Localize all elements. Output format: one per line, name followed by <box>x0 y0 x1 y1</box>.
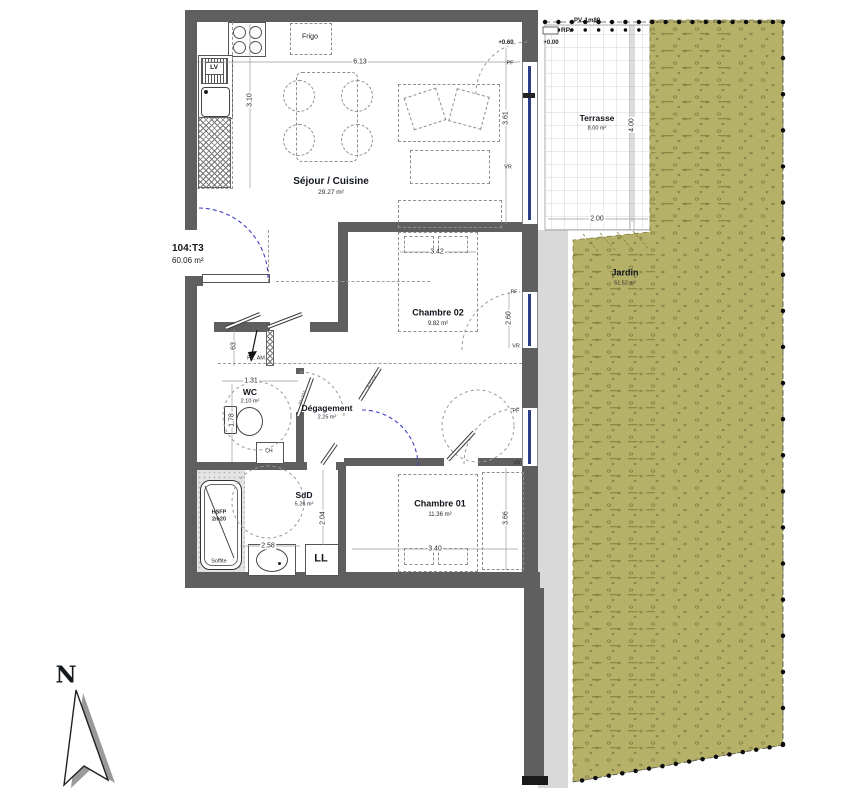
pf-chambre01: PF <box>512 409 519 415</box>
floor-plan: LV Frigo LL CH <box>0 0 856 800</box>
room-area-jardin: 51.52 m² <box>614 281 636 287</box>
room-area-chambre01: 11.36 m² <box>428 512 451 518</box>
dim-sdd-width: 2.58 <box>260 543 276 550</box>
dim-chambre01-depth: 3.66 <box>503 510 510 526</box>
dim-wc-depth: 1.78 <box>229 412 236 428</box>
room-label-jardin: Jardin <box>611 269 638 278</box>
dim-chambre02-width: 3.42 <box>429 249 445 256</box>
room-label-chambre02: Chambre 02 <box>412 309 464 318</box>
dim-terrace-length: 4.00 <box>629 117 636 133</box>
north-arrow <box>58 688 128 793</box>
room-area-terrasse: 8.00 m² <box>588 126 607 132</box>
dim-terrace-width: 2.00 <box>589 216 605 223</box>
pf-chambre02: PF <box>510 290 517 296</box>
unit-area: 60.06 m² <box>172 257 204 265</box>
hsfp-height: 2m20 <box>212 517 226 523</box>
pv-label: PV. 1m80 <box>574 18 600 24</box>
dim-sdd-depth: 2.04 <box>320 510 327 526</box>
soffit-label: Soffite <box>211 559 227 565</box>
closet-label: PL. AM <box>247 356 265 362</box>
plan-linework <box>0 0 856 800</box>
room-label-wc: WC <box>243 388 257 397</box>
dim-living-window: 3.61 <box>503 110 510 126</box>
room-label-chambre01: Chambre 01 <box>414 500 466 509</box>
vr-chambre01: VR <box>513 461 521 467</box>
dim-closet-width: 63 <box>231 341 238 351</box>
room-area-degagement: 2.25 m² <box>318 415 337 421</box>
room-area-chambre02: 9.82 m² <box>428 321 448 327</box>
room-area-sejour: 29.27 m² <box>318 190 344 197</box>
level-terrace: +0.60 <box>498 40 513 46</box>
dim-living-width: 6.13 <box>352 59 368 66</box>
room-area-wc: 2.10 m² <box>241 399 260 405</box>
hsfp-label: HSFP <box>212 510 227 516</box>
room-label-degagement: Dégagement <box>301 404 352 413</box>
vr-living: VR <box>504 165 512 171</box>
dim-chambre02-window: 2.60 <box>506 310 513 326</box>
rp-label: RP. <box>561 28 571 35</box>
pf-living: PF <box>506 61 513 67</box>
level-garden: +0.00 <box>543 40 558 46</box>
room-label-sdd: SdD <box>296 491 313 500</box>
unit-id: 104:T3 <box>172 244 204 254</box>
room-area-sdd: 5.26 m² <box>295 502 314 508</box>
north-label: N <box>55 664 76 687</box>
dim-kitchen-depth: 3.10 <box>247 92 254 108</box>
vr-chambre02: VR <box>512 344 520 350</box>
dim-chambre01-width: 3.40 <box>427 546 443 553</box>
room-label-sejour: Séjour / Cuisine <box>293 177 369 187</box>
room-label-terrasse: Terrasse <box>580 114 615 123</box>
dim-wc-width: 1.31 <box>243 378 259 385</box>
